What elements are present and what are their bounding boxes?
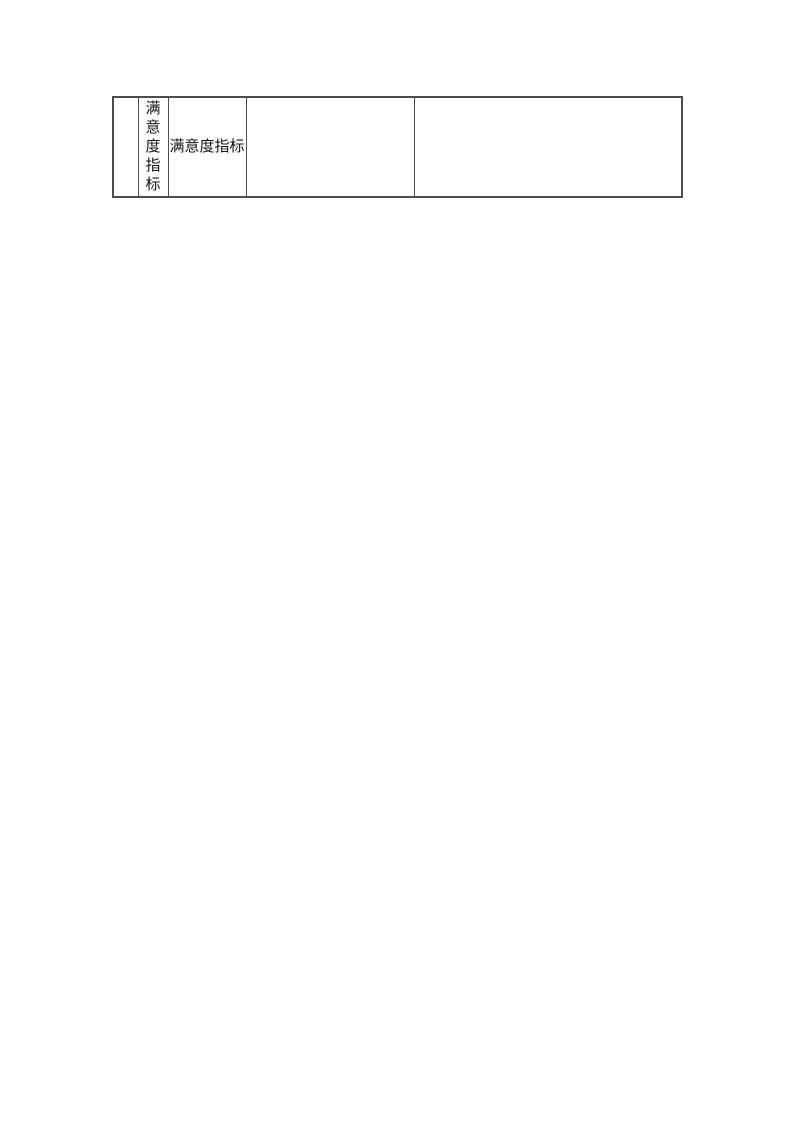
table-row: 满意度指标 满意度指标: [113, 97, 682, 197]
cell-empty-middle: [246, 97, 414, 197]
cell-satisfaction-indicator-vertical: 满意度指标: [138, 97, 168, 197]
cell-satisfaction-indicator-label: 满意度指标: [168, 97, 246, 197]
cell-empty-left: [113, 97, 138, 197]
indicator-table: 满意度指标 满意度指标: [112, 96, 683, 198]
document-page: 满意度指标 满意度指标: [0, 0, 793, 1122]
cell-empty-right: [414, 97, 682, 197]
